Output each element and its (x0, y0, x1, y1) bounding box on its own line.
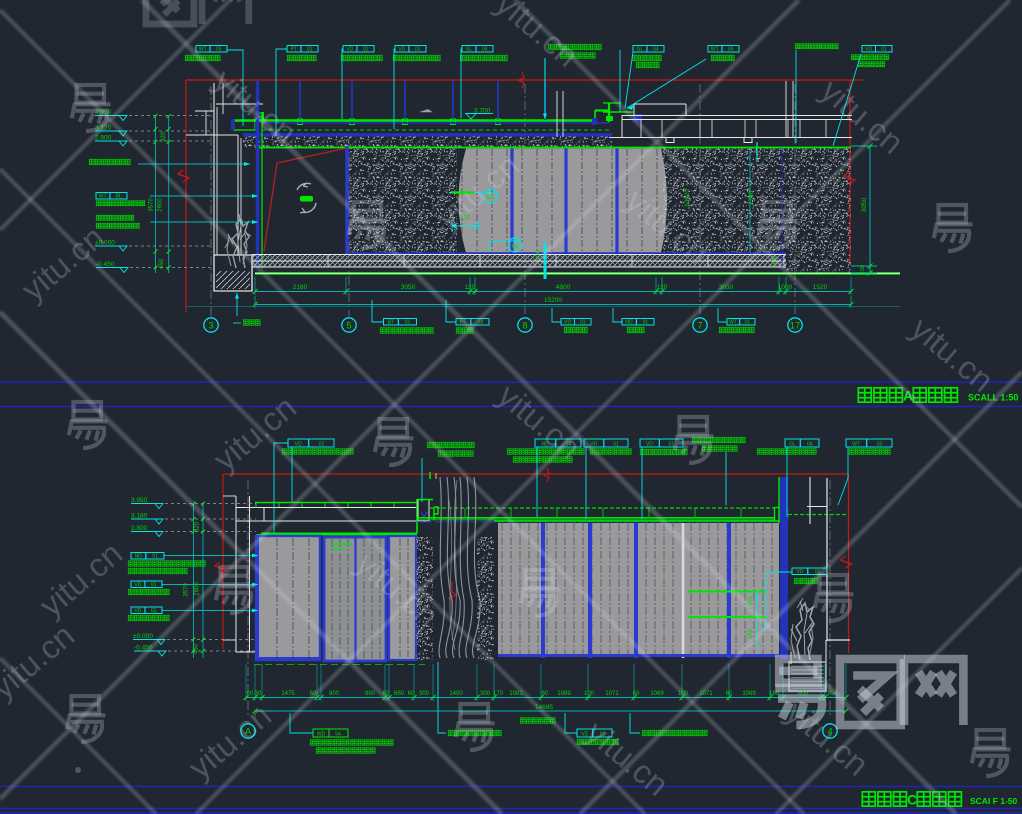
svg-text:1400: 1400 (449, 691, 463, 697)
svg-text:01: 01 (151, 582, 157, 588)
svg-text:1000: 1000 (778, 284, 793, 291)
svg-text:660: 660 (394, 691, 405, 697)
svg-text:3050: 3050 (401, 284, 416, 291)
svg-text:1069: 1069 (742, 691, 756, 697)
svg-text:7: 7 (697, 320, 702, 331)
svg-text:BT: BT (388, 320, 394, 326)
svg-text:WT: WT (852, 442, 860, 448)
svg-text:01: 01 (745, 320, 751, 326)
svg-text:VD: VD (346, 47, 353, 53)
svg-text:60: 60 (633, 691, 640, 697)
svg-text:01: 01 (415, 47, 421, 53)
svg-text:2160: 2160 (293, 284, 308, 291)
svg-text:120: 120 (657, 284, 668, 291)
svg-text:300: 300 (419, 691, 430, 697)
svg-text:150: 150 (748, 628, 754, 639)
svg-text:01: 01 (152, 554, 158, 560)
svg-text:04: 04 (653, 47, 659, 53)
svg-text:320: 320 (161, 131, 167, 142)
svg-text:01: 01 (580, 320, 586, 326)
svg-text:ND: ND (135, 554, 143, 560)
svg-text:100: 100 (584, 691, 595, 697)
svg-text:VD: VD (134, 608, 141, 614)
svg-text:GL: GL (636, 47, 643, 53)
svg-text:8: 8 (522, 320, 527, 331)
svg-text:3: 3 (208, 320, 213, 331)
svg-text:2800: 2800 (195, 582, 201, 596)
svg-text:320: 320 (195, 521, 201, 532)
svg-text:ND: ND (625, 320, 633, 326)
svg-text:1520: 1520 (813, 284, 828, 291)
svg-text:30: 30 (255, 691, 262, 697)
svg-text:5: 5 (346, 320, 351, 331)
svg-text:04: 04 (807, 442, 813, 448)
svg-text:03: 03 (216, 47, 222, 53)
svg-text:WT: WT (199, 47, 207, 53)
svg-text:1071: 1071 (605, 691, 619, 697)
svg-text:60: 60 (726, 691, 733, 697)
svg-text:VD: VD (796, 569, 803, 575)
svg-text:01: 01 (307, 47, 313, 53)
svg-text:3050: 3050 (861, 197, 868, 212)
svg-text:4800: 4800 (556, 284, 571, 291)
svg-text:04: 04 (482, 47, 488, 53)
svg-text:120: 120 (465, 284, 476, 291)
svg-text:60: 60 (408, 691, 415, 697)
svg-text:900: 900 (329, 691, 340, 697)
svg-text:01: 01 (643, 320, 649, 326)
svg-text:BL: BL (116, 194, 122, 200)
svg-text:300: 300 (480, 691, 491, 697)
svg-text:VD: VD (295, 442, 302, 448)
svg-text:2900: 2900 (158, 198, 164, 212)
svg-text:170: 170 (493, 691, 504, 697)
svg-text:13620: 13620 (684, 189, 691, 207)
svg-text:3570: 3570 (149, 198, 155, 212)
svg-text:1475: 1475 (281, 691, 295, 697)
svg-text:SCAI F 1-50: SCAI F 1-50 (970, 796, 1018, 806)
svg-text:01: 01 (363, 47, 369, 53)
svg-text:900: 900 (365, 691, 376, 697)
svg-text:WT: WT (99, 194, 107, 200)
svg-text:1069: 1069 (650, 691, 664, 697)
svg-text:2740: 2740 (748, 190, 755, 205)
svg-text:VD: VD (646, 442, 653, 448)
svg-text:60: 60 (542, 691, 549, 697)
svg-text:60: 60 (247, 691, 254, 697)
svg-text:C: C (907, 792, 917, 808)
svg-text:03: 03 (877, 442, 883, 448)
svg-text:150: 150 (860, 265, 866, 274)
svg-text:450: 450 (194, 643, 200, 654)
svg-text:PT: PT (291, 47, 297, 53)
svg-text:VD: VD (398, 47, 405, 53)
svg-text:01: 01 (405, 320, 411, 326)
svg-text:54: 54 (335, 732, 341, 738)
svg-text:WT: WT (729, 320, 737, 326)
svg-text:17: 17 (790, 320, 801, 331)
svg-text:GL: GL (465, 47, 472, 53)
svg-text:01: 01 (613, 442, 619, 448)
svg-text:WD: WD (317, 732, 326, 738)
svg-text:VD: VD (134, 582, 141, 588)
svg-text:01: 01 (151, 608, 157, 614)
svg-text:VD: VD (564, 320, 571, 326)
svg-text:VD: VD (865, 47, 872, 53)
svg-text:1069: 1069 (557, 691, 571, 697)
svg-text:3570: 3570 (184, 583, 190, 597)
svg-text:04: 04 (728, 47, 734, 53)
svg-text:450: 450 (159, 258, 165, 269)
svg-text:WT: WT (711, 47, 719, 53)
svg-text:15200: 15200 (544, 297, 562, 304)
svg-text:M2: M2 (512, 244, 519, 250)
svg-text:01: 01 (319, 442, 325, 448)
svg-text:GL: GL (789, 442, 796, 448)
svg-text:01: 01 (881, 47, 887, 53)
